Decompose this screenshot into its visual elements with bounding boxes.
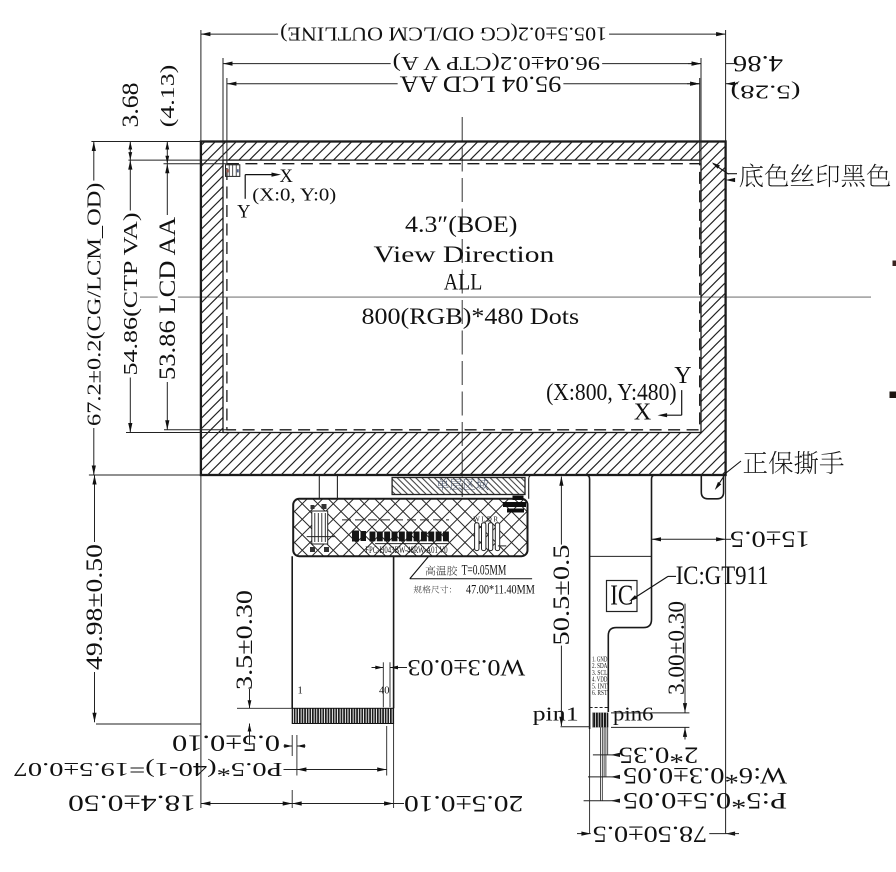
svg-text:53.86 LCD AA: 53.86 LCD AA	[155, 217, 181, 380]
svg-text:1: 1	[298, 686, 303, 697]
svg-text:15±0.5: 15±0.5	[730, 525, 810, 551]
svg-text:800(RGB)*480 Dots: 800(RGB)*480 Dots	[362, 304, 580, 330]
svg-text:18.4±0.50: 18.4±0.50	[68, 789, 196, 815]
svg-text:78.50±0.5: 78.50±0.5	[593, 820, 708, 846]
svg-text:pin6: pin6	[613, 703, 654, 725]
svg-text:pin1: pin1	[533, 703, 579, 725]
svg-text:(X:800, Y:480): (X:800, Y:480)	[546, 380, 677, 406]
svg-text:54.86(CTP VA): 54.86(CTP VA)	[120, 213, 142, 376]
svg-text:3.68: 3.68	[118, 83, 144, 128]
svg-text:View Direction: View Direction	[374, 242, 555, 268]
svg-text:W L D R: W L D R	[473, 514, 498, 523]
svg-text:Y: Y	[674, 363, 691, 389]
svg-text:P0.5*(40-1)=19.5±0.07: P0.5*(40-1)=19.5±0.07	[14, 758, 283, 780]
svg-text:105.5±0.2(CG OD/LCM OUTLINE): 105.5±0.2(CG OD/LCM OUTLINE)	[280, 23, 607, 45]
svg-text:47.00*11.40MM: 47.00*11.40MM	[466, 581, 535, 596]
svg-text:4.3″(BOE): 4.3″(BOE)	[405, 212, 517, 238]
svg-text:4.86: 4.86	[733, 50, 783, 76]
svg-text:49.98±0.50: 49.98±0.50	[82, 544, 108, 670]
svg-text:T=0.05MM: T=0.05MM	[462, 562, 507, 578]
svg-text:IC: IC	[610, 579, 633, 611]
svg-text:(4.13): (4.13)	[157, 65, 179, 128]
svg-text:3.00±0.30: 3.00±0.30	[664, 601, 690, 695]
svg-text:20.5±0.10: 20.5±0.10	[404, 790, 523, 816]
svg-text:(X:0, Y:0): (X:0, Y:0)	[252, 185, 336, 205]
svg-text:95.04 LCD AA: 95.04 LCD AA	[399, 70, 561, 96]
svg-text:6. RST: 6. RST	[592, 690, 608, 697]
svg-text:ALL: ALL	[444, 270, 483, 296]
svg-text:IC:GT911: IC:GT911	[676, 561, 769, 590]
svg-text:X: X	[634, 399, 651, 425]
svg-text:P:5*0.5±0.05: P:5*0.5±0.05	[623, 787, 787, 813]
svg-text:W:6*0.3±0.05: W:6*0.3±0.05	[623, 762, 787, 788]
svg-text:W0.3±0.03: W0.3±0.03	[407, 654, 525, 680]
svg-text:Y: Y	[237, 203, 250, 223]
svg-text:0.5±0.10: 0.5±0.10	[172, 729, 280, 755]
svg-text:40: 40	[379, 686, 390, 697]
svg-text:50.5±0.5: 50.5±0.5	[549, 545, 575, 646]
svg-text:FPC-H043BW-48RW-A01 V0: FPC-H043BW-48RW-A01 V0	[365, 546, 447, 556]
svg-text:67.2±0.2(CG/LCM_OD): 67.2±0.2(CG/LCM_OD)	[84, 183, 106, 426]
svg-text:(5.28): (5.28)	[731, 80, 801, 102]
svg-text:3.5±0.30: 3.5±0.30	[232, 590, 258, 690]
